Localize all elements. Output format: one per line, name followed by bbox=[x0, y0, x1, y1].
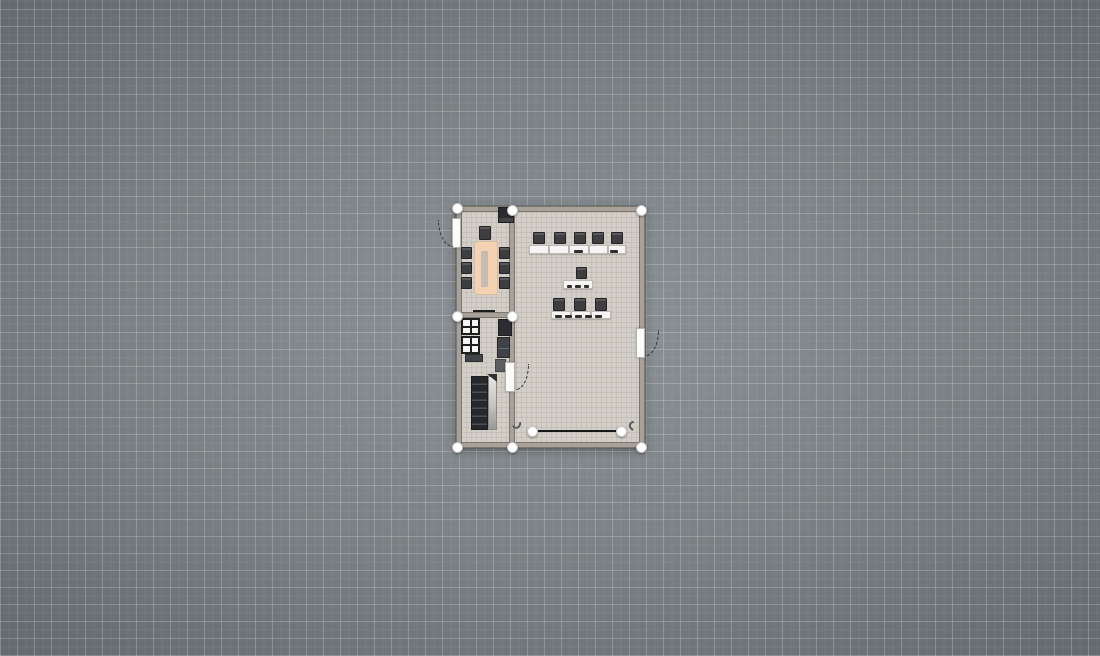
wall-handle-bottom-left[interactable] bbox=[452, 442, 463, 453]
classroom-chair-row2-3[interactable] bbox=[595, 298, 607, 311]
desk-item bbox=[574, 250, 583, 253]
wall-top[interactable] bbox=[456, 206, 645, 212]
classroom-chair-row2-2[interactable] bbox=[574, 298, 586, 311]
wall-handle-top-right[interactable] bbox=[636, 205, 647, 216]
classroom-chair-row2-1[interactable] bbox=[553, 298, 565, 311]
shelf-unit-door[interactable] bbox=[488, 376, 497, 430]
wall-right[interactable] bbox=[639, 206, 645, 448]
pass-through-counter[interactable] bbox=[473, 310, 495, 312]
wall-handle-mid-center[interactable] bbox=[507, 311, 518, 322]
door-east-swing-arc bbox=[646, 330, 659, 356]
student-desk-row1-1[interactable] bbox=[529, 245, 549, 254]
wall-handle-top-left[interactable] bbox=[452, 203, 463, 214]
desk-item bbox=[575, 285, 581, 288]
dining-chair-right-1[interactable] bbox=[499, 247, 510, 259]
wall-handle-top-middle[interactable] bbox=[507, 205, 518, 216]
table-runner bbox=[481, 251, 488, 287]
desk-item bbox=[565, 315, 572, 318]
desk-item bbox=[555, 315, 562, 318]
classroom-chair-row1-5[interactable] bbox=[611, 232, 623, 244]
dining-chair-head[interactable] bbox=[479, 226, 491, 240]
door-west[interactable] bbox=[452, 218, 461, 248]
segment-handle-right[interactable] bbox=[616, 426, 627, 437]
low-cabinet[interactable] bbox=[465, 354, 483, 362]
door-east[interactable] bbox=[636, 328, 645, 358]
dining-chair-right-2[interactable] bbox=[499, 262, 510, 274]
dining-chair-right-3[interactable] bbox=[499, 277, 510, 289]
kitchen-cabinet[interactable] bbox=[497, 337, 510, 358]
classroom-chair-row1-2[interactable] bbox=[554, 232, 566, 244]
wall-bottom[interactable] bbox=[456, 442, 645, 448]
wall-handle-mid-left[interactable] bbox=[452, 311, 463, 322]
shelf-unit-dark[interactable] bbox=[471, 376, 488, 430]
corner-cabinet[interactable] bbox=[498, 319, 512, 336]
plan-editor-canvas[interactable] bbox=[0, 0, 1100, 656]
glass-cabinet-1[interactable] bbox=[461, 318, 480, 335]
desk-item bbox=[610, 250, 618, 253]
classroom-chair-row1-4[interactable] bbox=[592, 232, 604, 244]
glass-cabinet-2[interactable] bbox=[461, 336, 480, 354]
desk-item bbox=[575, 315, 582, 318]
dining-chair-left-2[interactable] bbox=[461, 262, 472, 274]
student-desk-row1-4[interactable] bbox=[589, 245, 608, 254]
segment-handle-left[interactable] bbox=[527, 426, 538, 437]
classroom-chair-row1-1[interactable] bbox=[533, 232, 545, 244]
selected-wall-segment[interactable] bbox=[532, 430, 621, 432]
desk-item bbox=[567, 285, 572, 288]
door-west-swing-arc bbox=[438, 220, 453, 247]
wall-handle-bottom-middle[interactable] bbox=[507, 442, 518, 453]
door-center[interactable] bbox=[505, 362, 515, 392]
dining-chair-left-1[interactable] bbox=[461, 247, 472, 259]
wall-handle-bottom-right[interactable] bbox=[636, 442, 647, 453]
desk-item bbox=[585, 315, 592, 318]
dining-chair-left-3[interactable] bbox=[461, 277, 472, 289]
classroom-chair-row1-3[interactable] bbox=[574, 232, 586, 244]
desk-item bbox=[595, 315, 602, 318]
teacher-chair[interactable] bbox=[576, 267, 587, 279]
desk-item bbox=[584, 285, 589, 288]
student-desk-row1-2[interactable] bbox=[549, 245, 569, 254]
